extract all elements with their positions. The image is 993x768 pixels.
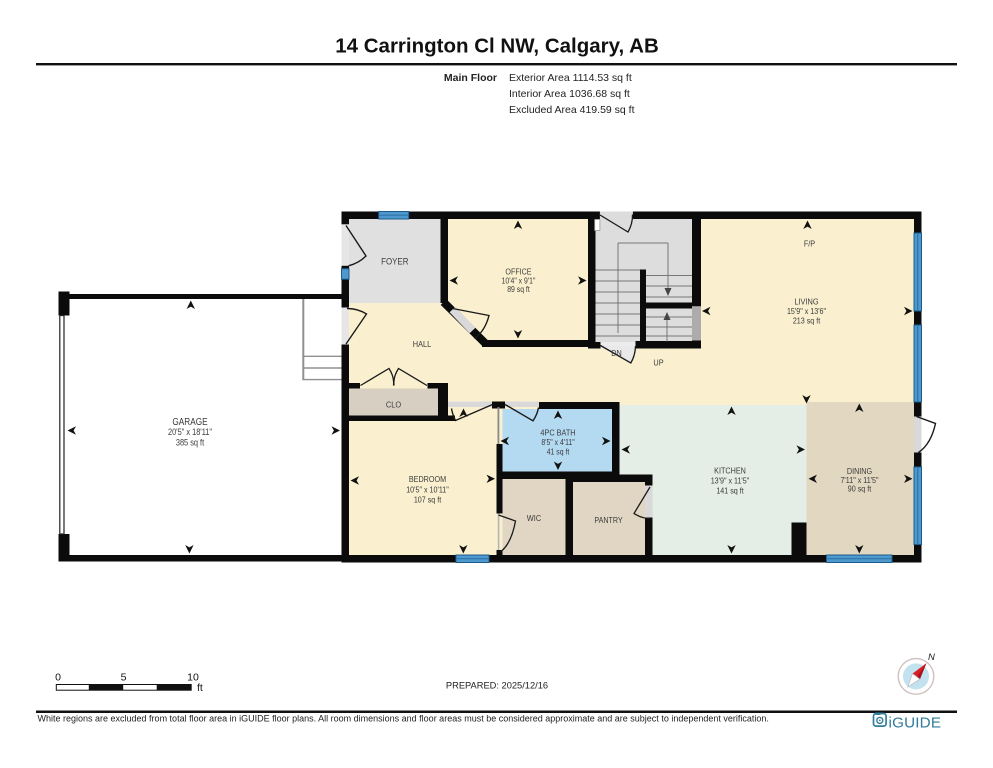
svg-text:90 sq ft: 90 sq ft (848, 484, 872, 494)
svg-text:DN: DN (611, 348, 622, 358)
svg-text:385 sq ft: 385 sq ft (176, 438, 205, 448)
svg-text:Excluded Area 419.59 sq ft: Excluded Area 419.59 sq ft (509, 104, 635, 116)
svg-text:CLO: CLO (386, 400, 401, 410)
svg-text:GARAGE: GARAGE (172, 416, 207, 427)
svg-text:PANTRY: PANTRY (594, 515, 622, 525)
svg-text:WIC: WIC (527, 513, 542, 523)
svg-text:LIVING: LIVING (794, 297, 818, 307)
svg-text:BEDROOM: BEDROOM (409, 474, 446, 484)
svg-text:14 Carrington Cl NW, Calgary,: 14 Carrington Cl NW, Calgary, AB (335, 35, 659, 58)
svg-text:N: N (928, 652, 935, 663)
svg-text:Exterior Area 1114.53 sq ft: Exterior Area 1114.53 sq ft (509, 72, 632, 84)
svg-text:13'9" x 11'5": 13'9" x 11'5" (711, 476, 750, 486)
svg-text:iGUIDE: iGUIDE (889, 715, 942, 732)
svg-text:213 sq ft: 213 sq ft (793, 316, 821, 326)
svg-text:F/P: F/P (804, 239, 815, 249)
svg-text:5: 5 (121, 672, 127, 684)
svg-text:HALL: HALL (413, 339, 432, 349)
svg-text:89 sq ft: 89 sq ft (507, 284, 530, 294)
svg-text:FOYER: FOYER (381, 256, 408, 267)
svg-text:UP: UP (653, 358, 663, 368)
svg-text:8'5" x 4'11": 8'5" x 4'11" (541, 437, 575, 447)
svg-text:15'9" x 13'6": 15'9" x 13'6" (787, 306, 826, 316)
svg-text:141 sq ft: 141 sq ft (716, 486, 744, 496)
svg-text:4PC BATH: 4PC BATH (540, 428, 575, 438)
svg-text:PREPARED: 2025/12/16: PREPARED: 2025/12/16 (446, 681, 548, 691)
svg-text:ft: ft (197, 682, 203, 694)
svg-text:0: 0 (55, 672, 61, 684)
svg-text:Main Floor: Main Floor (444, 72, 497, 84)
svg-text:White regions are excluded fro: White regions are excluded from total fl… (38, 714, 769, 724)
svg-text:41 sq ft: 41 sq ft (547, 447, 570, 457)
svg-text:KITCHEN: KITCHEN (714, 466, 746, 476)
svg-text:20'5" x 18'11": 20'5" x 18'11" (168, 427, 212, 437)
svg-text:10'5" x 10'11": 10'5" x 10'11" (406, 485, 449, 495)
svg-text:107 sq ft: 107 sq ft (414, 495, 442, 505)
svg-text:Interior Area 1036.68 sq ft: Interior Area 1036.68 sq ft (509, 88, 630, 100)
